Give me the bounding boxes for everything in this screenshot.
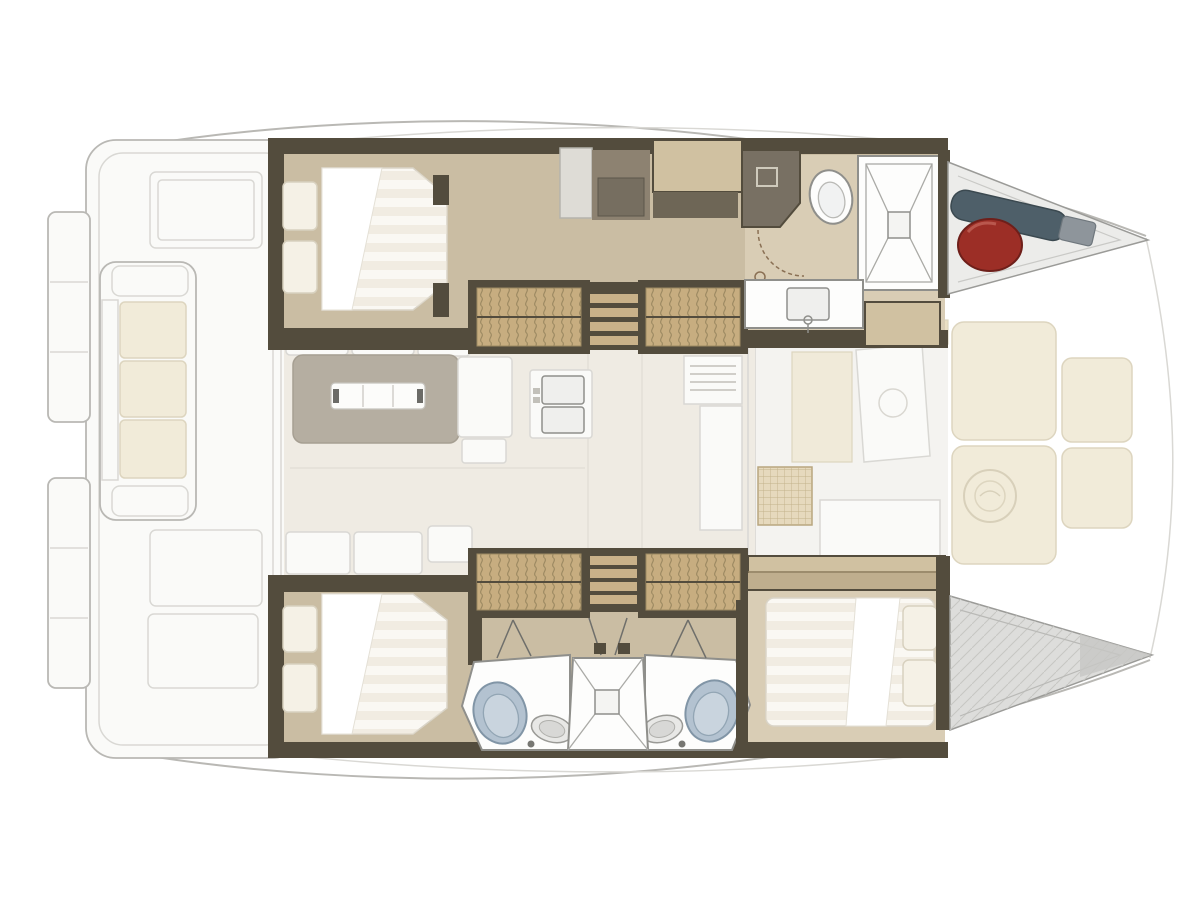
fender: [958, 219, 1022, 271]
table-leaf-endcap: [333, 389, 339, 403]
sofa-cushion: [120, 361, 186, 417]
galley-counter: [458, 357, 512, 437]
starboard-hull-aft-wall: [268, 575, 284, 758]
sofa-cushion: [120, 302, 186, 358]
cabin-partition: [736, 600, 748, 752]
sofa-backrest: [102, 300, 118, 480]
sunpad: [1062, 448, 1132, 528]
forward-bench: [820, 500, 940, 556]
port-steps-aft: [468, 280, 590, 354]
sunpad: [952, 446, 1056, 564]
pillow: [283, 241, 317, 293]
washbasin: [787, 288, 829, 320]
stair-tread: [590, 294, 638, 303]
stern-locker-fwd-2: [148, 614, 258, 688]
swim-platform-port: [48, 212, 90, 422]
vanity: [745, 280, 863, 333]
stair-tread: [590, 308, 638, 317]
starboard-steps-forward: [638, 548, 748, 618]
stern-locker-aft: [150, 172, 262, 248]
shower-drain: [888, 212, 910, 238]
sink-basin: [542, 376, 584, 404]
lower-cabinet: [653, 192, 738, 218]
cabin-door-jamb: [433, 283, 449, 317]
sofa-armrest-top: [112, 266, 188, 296]
door-hinge: [594, 643, 606, 654]
stove: [684, 356, 742, 404]
starboard-steps-aft: [468, 548, 590, 618]
stair-tread: [590, 556, 637, 565]
sunpad: [1062, 358, 1132, 442]
stern-locker-fwd-1: [150, 530, 262, 606]
foredeck: [748, 320, 1132, 582]
galley-counter-low: [462, 439, 506, 463]
port-forepeak: [938, 150, 1148, 298]
shower-drain: [595, 690, 619, 714]
faucet: [679, 741, 686, 748]
pillow: [903, 606, 937, 650]
stair-tread: [590, 322, 638, 331]
table-leaf-endcap: [417, 389, 423, 403]
bow-tip-shadow: [1080, 634, 1152, 677]
cabinet-door: [598, 178, 644, 216]
saloon-seat-cushion: [286, 532, 350, 574]
port-passage: [585, 282, 643, 350]
starboard-hull-top-wall: [268, 575, 480, 592]
faucet: [528, 741, 535, 748]
port-steps-forward: [638, 280, 748, 354]
locker: [560, 148, 592, 218]
shared-shower: [568, 658, 648, 750]
starboard-hull: [268, 548, 1152, 758]
cabin-door-jamb: [433, 175, 449, 205]
faucet-knob: [533, 388, 540, 394]
swim-platform-starboard: [48, 478, 90, 688]
sink-basin: [542, 407, 584, 433]
floor-plan-canvas: [0, 0, 1200, 899]
door-hinge: [618, 643, 630, 654]
head-cabinet-lower: [748, 573, 945, 589]
bow-connecting-line: [1146, 238, 1173, 658]
table-leaf: [331, 383, 425, 409]
aft-deck: [48, 140, 302, 758]
stair-tread: [590, 336, 638, 345]
port-dressing-area: [560, 140, 800, 227]
stair-tread: [590, 569, 637, 578]
pillow: [283, 606, 317, 652]
saloon-seat-cushion: [354, 532, 422, 574]
pillow: [283, 182, 317, 230]
forward-counter: [700, 406, 742, 530]
sofa-armrest-bottom: [112, 486, 188, 516]
headboard-bulkhead: [936, 556, 950, 730]
shower: [858, 156, 940, 290]
faucet-knob: [533, 397, 540, 403]
pillow: [283, 664, 317, 712]
saloon-seat-cushion: [428, 526, 472, 562]
under-shower-cabinet: [865, 302, 940, 346]
catamaran-floor-plan: [0, 0, 1200, 899]
deck-hatch-grid: [758, 467, 812, 525]
starboard-bow: [950, 596, 1152, 730]
bathroom-partition: [468, 615, 482, 665]
pillow: [903, 660, 937, 706]
sunpad: [952, 322, 1056, 440]
starboard-forward-cabin: [736, 556, 950, 752]
forward-seat-panel: [792, 352, 852, 462]
forward-cockpit-door: [856, 344, 930, 462]
sofa-cushion: [120, 420, 186, 478]
overhead-locker: [653, 140, 742, 192]
stair-tread: [590, 595, 637, 604]
port-hull-saloon-wall-aft: [268, 328, 473, 350]
starboard-passage: [585, 548, 642, 612]
stair-tread: [590, 582, 637, 591]
port-hull-aft-wall: [268, 138, 284, 350]
